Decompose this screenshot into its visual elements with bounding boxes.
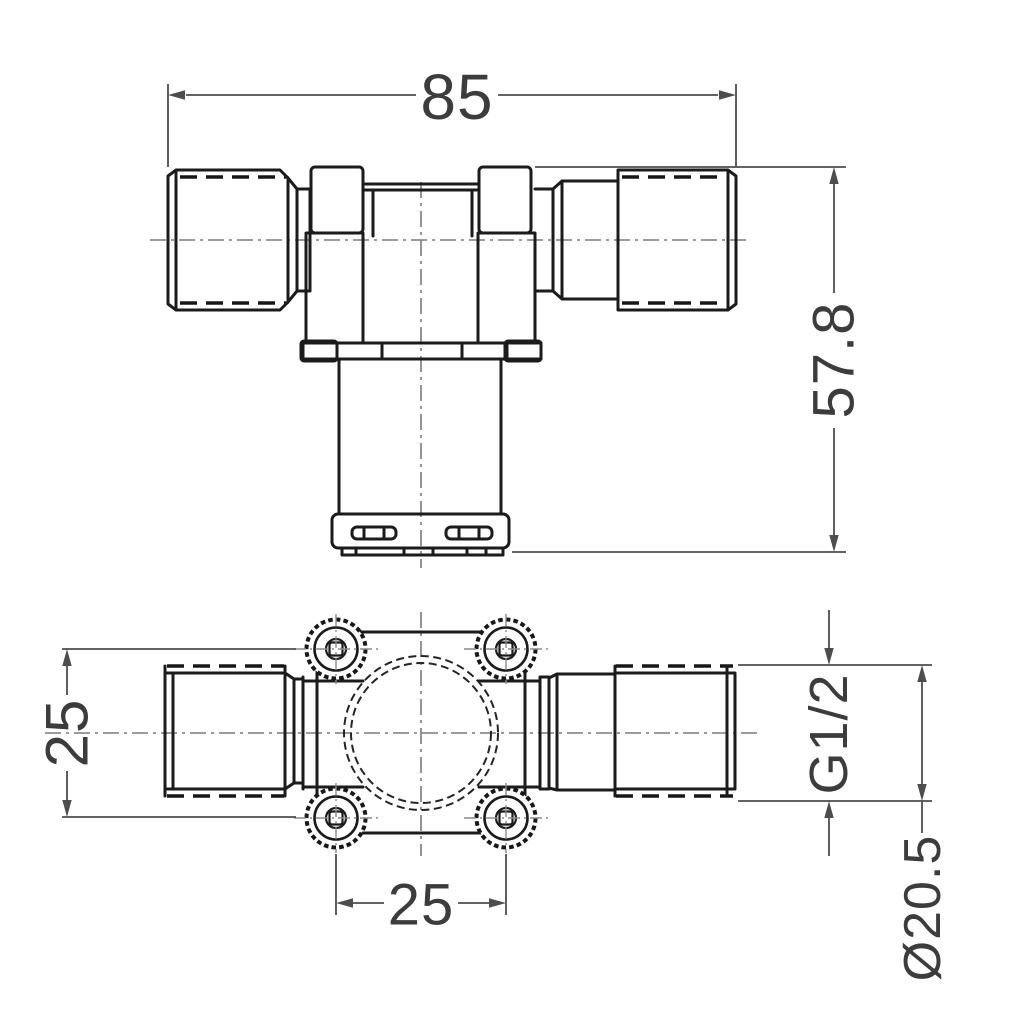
dim-label-port-offset: 25	[34, 699, 101, 768]
solenoid-valve-technical-drawing: 85 57.8	[0, 0, 1024, 1024]
dim-label-mount-spacing: 25	[388, 873, 455, 938]
dim-label-outlet-diameter: Ø20.5	[894, 835, 952, 982]
drawing-sheet: 85 57.8	[0, 0, 1024, 1024]
dim-label-thread-size: G1/2	[799, 673, 859, 794]
dim-label-overall-height: 57.8	[802, 302, 867, 419]
sheet-background	[0, 0, 1024, 1024]
dim-label-overall-width: 85	[420, 61, 493, 133]
